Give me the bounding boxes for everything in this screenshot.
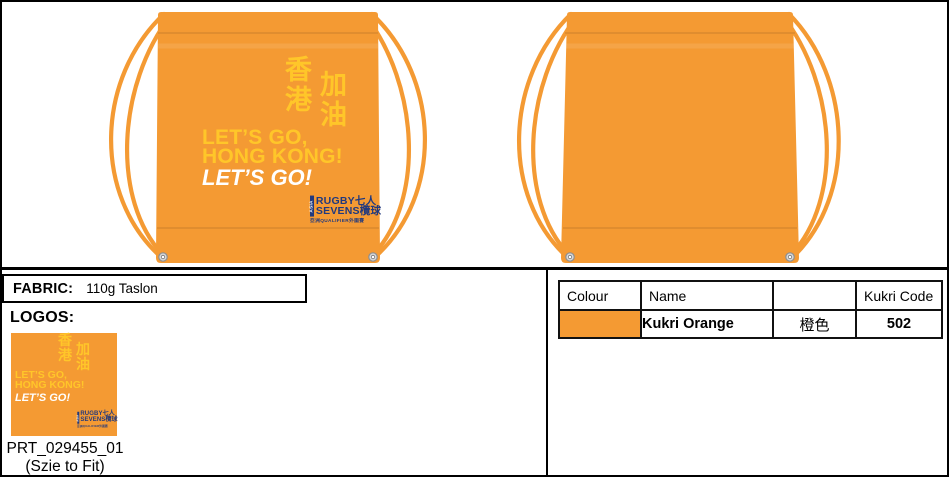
- print-slogan-yellow: LET’S GO, HONG KONG!: [202, 129, 343, 166]
- back-bag-body: [561, 12, 799, 263]
- header-colour: Colour: [559, 281, 641, 310]
- print-slogan-line2: HONG KONG!: [202, 148, 343, 167]
- logo-tagline: 亞洲QUALIFIER外圍賽: [77, 424, 118, 428]
- header-name: Name: [641, 281, 773, 310]
- print-cjk-jiayou: 加油: [318, 70, 349, 130]
- size-note: (Szie to Fit): [2, 458, 128, 476]
- vertical-divider: [546, 268, 548, 477]
- fabric-value: 110g Taslon: [86, 281, 158, 296]
- colour-swatch: [559, 310, 641, 338]
- front-bag-print: 香港 加油 LET’S GO, HONG KONG! LET’S GO! ASI…: [156, 12, 380, 263]
- logos-label: LOGOS:: [10, 309, 74, 327]
- logo-tagline: 亞洲QUALIFIER外圍賽: [310, 218, 381, 224]
- logo-line2: SEVENS欖球: [80, 418, 117, 424]
- header-kukri-code: Kukri Code: [856, 281, 942, 310]
- kukri-code-value: 502: [856, 310, 942, 338]
- print-cjk-hongkong: 香港: [57, 333, 73, 363]
- print-cjk-hongkong: 香港: [283, 55, 314, 115]
- colour-name: Kukri Orange: [641, 310, 773, 338]
- fabric-label: FABRIC:: [13, 281, 73, 297]
- rugby-sevens-logo: ASIA RUGBY七人 SEVENS欖球 亞洲QUALIFIER外圍賽: [310, 196, 381, 224]
- print-slogan-white: LET’S GO!: [15, 392, 70, 404]
- fabric-box: FABRIC: 110g Taslon: [2, 274, 307, 303]
- rugby-sevens-logo: ASIA RUGBY七人 SEVENS欖球 亞洲QUALIFIER外圍賽: [77, 412, 118, 428]
- colour-name-chinese: 橙色: [773, 310, 856, 338]
- spec-sheet-page: 香港 加油 LET’S GO, HONG KONG! LET’S GO! ASI…: [0, 0, 949, 477]
- print-code: PRT_029455_01: [2, 440, 128, 458]
- logo-asia-vertical-text: ASIA: [77, 412, 79, 424]
- horizontal-divider: [0, 267, 949, 270]
- header-blank: [773, 281, 856, 310]
- logo-artwork-swatch: 香港 加油 LET’S GO, HONG KONG! LET’S GO! ASI…: [11, 333, 117, 436]
- colour-table: Colour Name Kukri Code Kukri Orange 橙色 5…: [558, 280, 943, 339]
- drawstring-bags-illustration: [0, 0, 949, 270]
- colour-table-header-row: Colour Name Kukri Code: [559, 281, 942, 310]
- print-slogan-line2: HONG KONG!: [15, 381, 84, 391]
- logo-line2: SEVENS欖球: [316, 206, 381, 216]
- logo-asia-vertical-text: ASIA: [310, 196, 314, 217]
- print-cjk-jiayou: 加油: [75, 342, 91, 372]
- print-slogan-white: LET’S GO!: [202, 165, 312, 191]
- colour-table-row: Kukri Orange 橙色 502: [559, 310, 942, 338]
- print-slogan-yellow: LET’S GO, HONG KONG!: [15, 371, 84, 390]
